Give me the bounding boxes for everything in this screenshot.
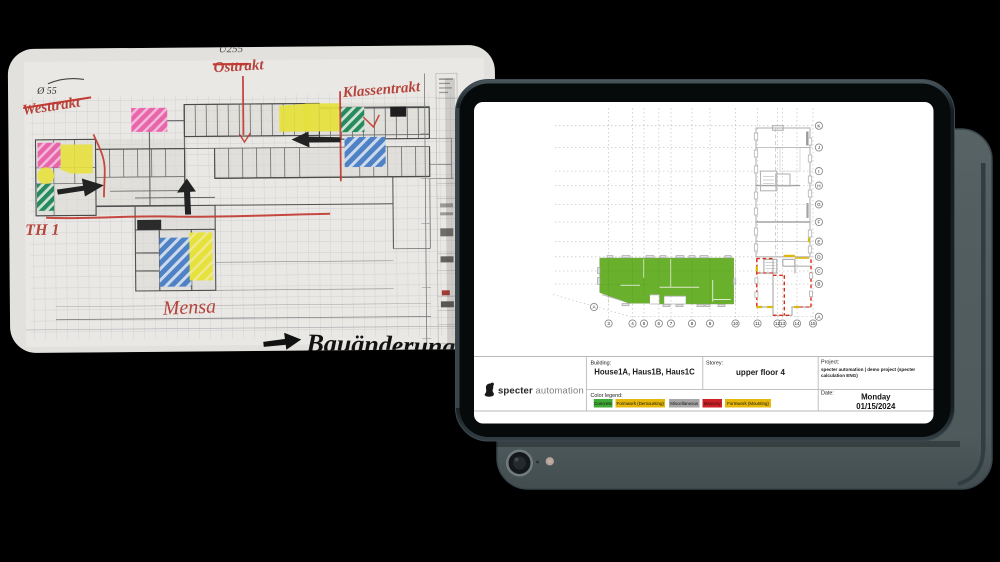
svg-text:House1A, Haus1B, Haus1C: House1A, Haus1B, Haus1C (594, 368, 695, 377)
svg-text:upper floor 4: upper floor 4 (736, 368, 785, 377)
svg-text:F: F (817, 220, 820, 225)
svg-text:11: 11 (755, 321, 760, 326)
svg-text:7: 7 (670, 321, 673, 326)
svg-text:Masonry: Masonry (704, 401, 722, 406)
svg-text:Storey:: Storey: (706, 361, 723, 367)
svg-text:Date:: Date: (821, 391, 834, 397)
svg-text:Monday: Monday (861, 392, 891, 401)
svg-text:Concrete: Concrete (594, 401, 612, 406)
svg-text:Building:: Building: (591, 361, 612, 367)
svg-text:Formwork (Mounting): Formwork (Mounting) (727, 401, 769, 406)
svg-text:Ø 55: Ø 55 (36, 86, 57, 97)
svg-text:8: 8 (691, 321, 694, 326)
svg-text:Formwork (Demounting): Formwork (Demounting) (617, 401, 665, 406)
svg-text:I: I (818, 169, 819, 174)
svg-text:B: B (817, 282, 820, 287)
svg-text:Mensa: Mensa (161, 295, 216, 319)
svg-text:6: 6 (658, 321, 661, 326)
svg-text:3: 3 (607, 321, 610, 326)
svg-text:calculation ENG): calculation ENG) (821, 373, 858, 378)
svg-text:specter: specter (498, 386, 533, 397)
svg-text:14: 14 (794, 321, 800, 326)
svg-text:01/15/2024: 01/15/2024 (856, 402, 896, 411)
svg-text:Color legend:: Color legend: (591, 393, 623, 399)
svg-text:5: 5 (643, 321, 646, 326)
svg-text:H: H (817, 183, 820, 188)
svg-text:TH 1: TH 1 (25, 222, 59, 239)
svg-text:13: 13 (780, 321, 786, 326)
svg-text:10: 10 (733, 321, 739, 326)
svg-text:Project:: Project: (821, 360, 839, 366)
svg-text:specter automation | demo proj: specter automation | demo project (spect… (821, 367, 915, 372)
svg-text:E: E (817, 239, 820, 244)
svg-text:15: 15 (810, 321, 816, 326)
svg-text:9: 9 (709, 321, 712, 326)
svg-text:automation: automation (536, 385, 584, 396)
svg-text:G: G (817, 202, 821, 207)
svg-text:4: 4 (631, 321, 634, 326)
svg-text:Miscellaneous: Miscellaneous (670, 401, 699, 406)
svg-text:Osttrakt: Osttrakt (213, 57, 265, 76)
svg-text:J: J (818, 145, 820, 150)
